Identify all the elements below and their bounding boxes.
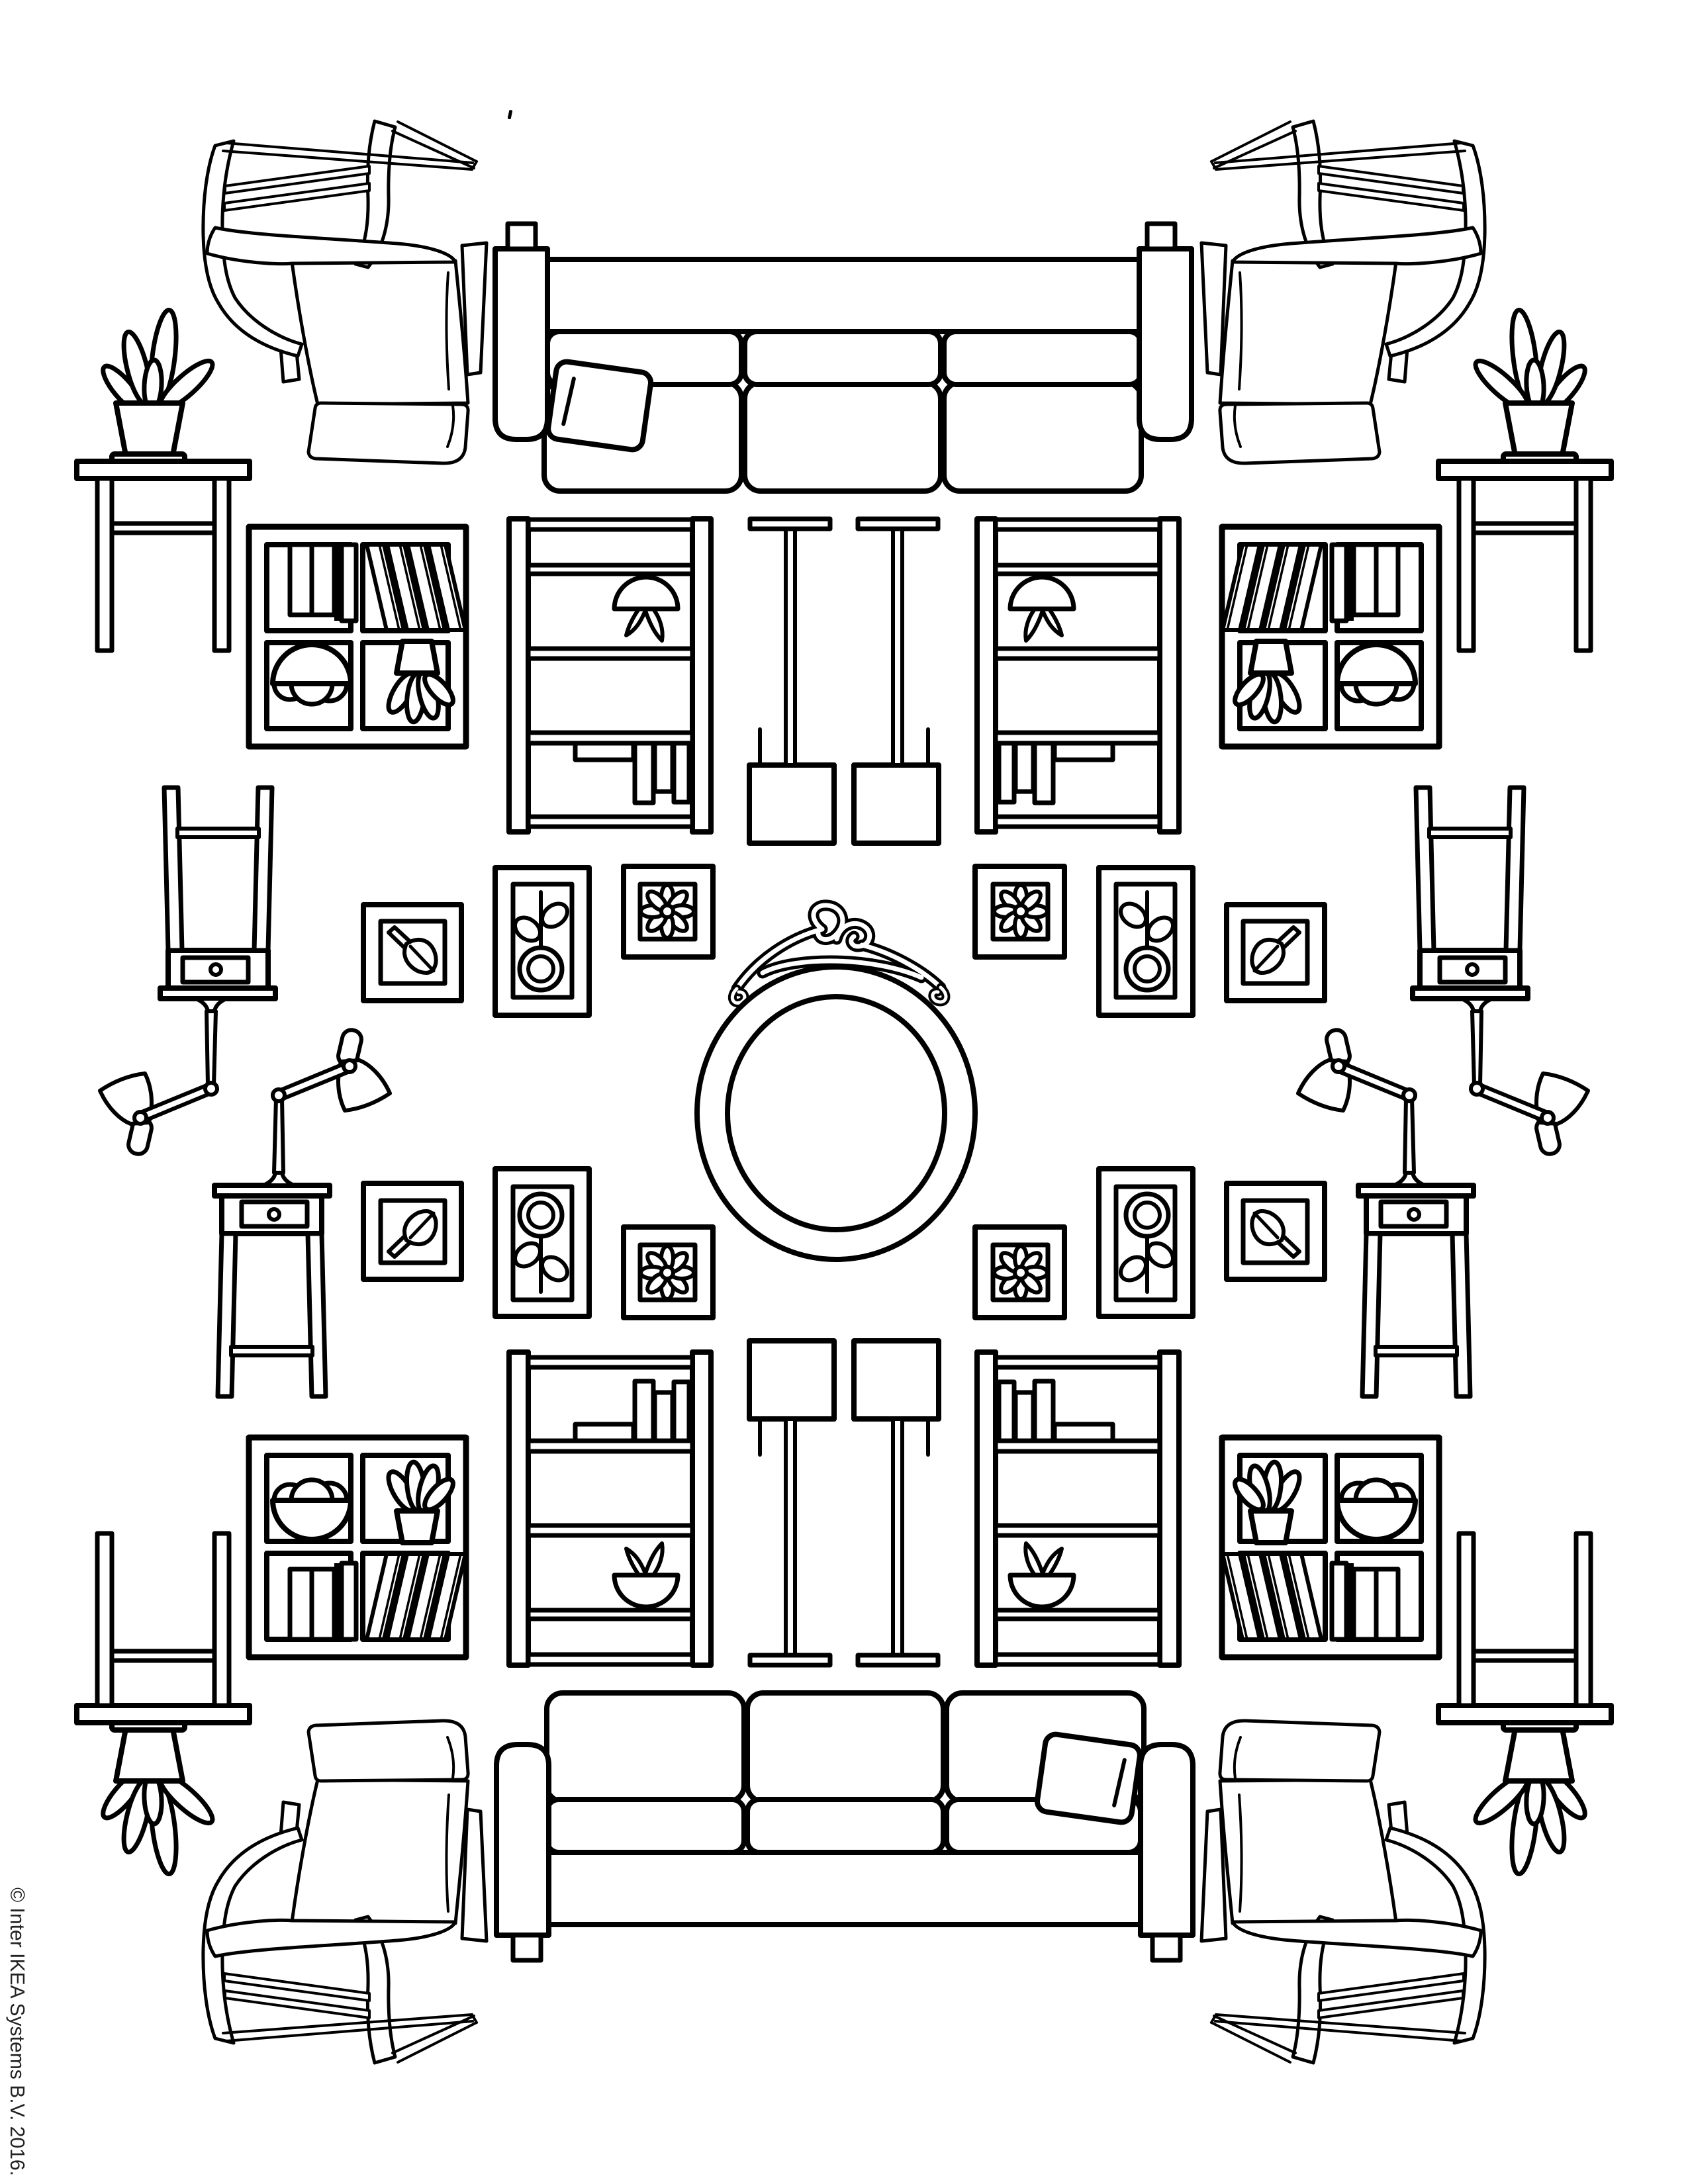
svg-text:© Inter IKEA Systems B.V. 2016: © Inter IKEA Systems B.V. 2016.	[6, 1888, 29, 2176]
